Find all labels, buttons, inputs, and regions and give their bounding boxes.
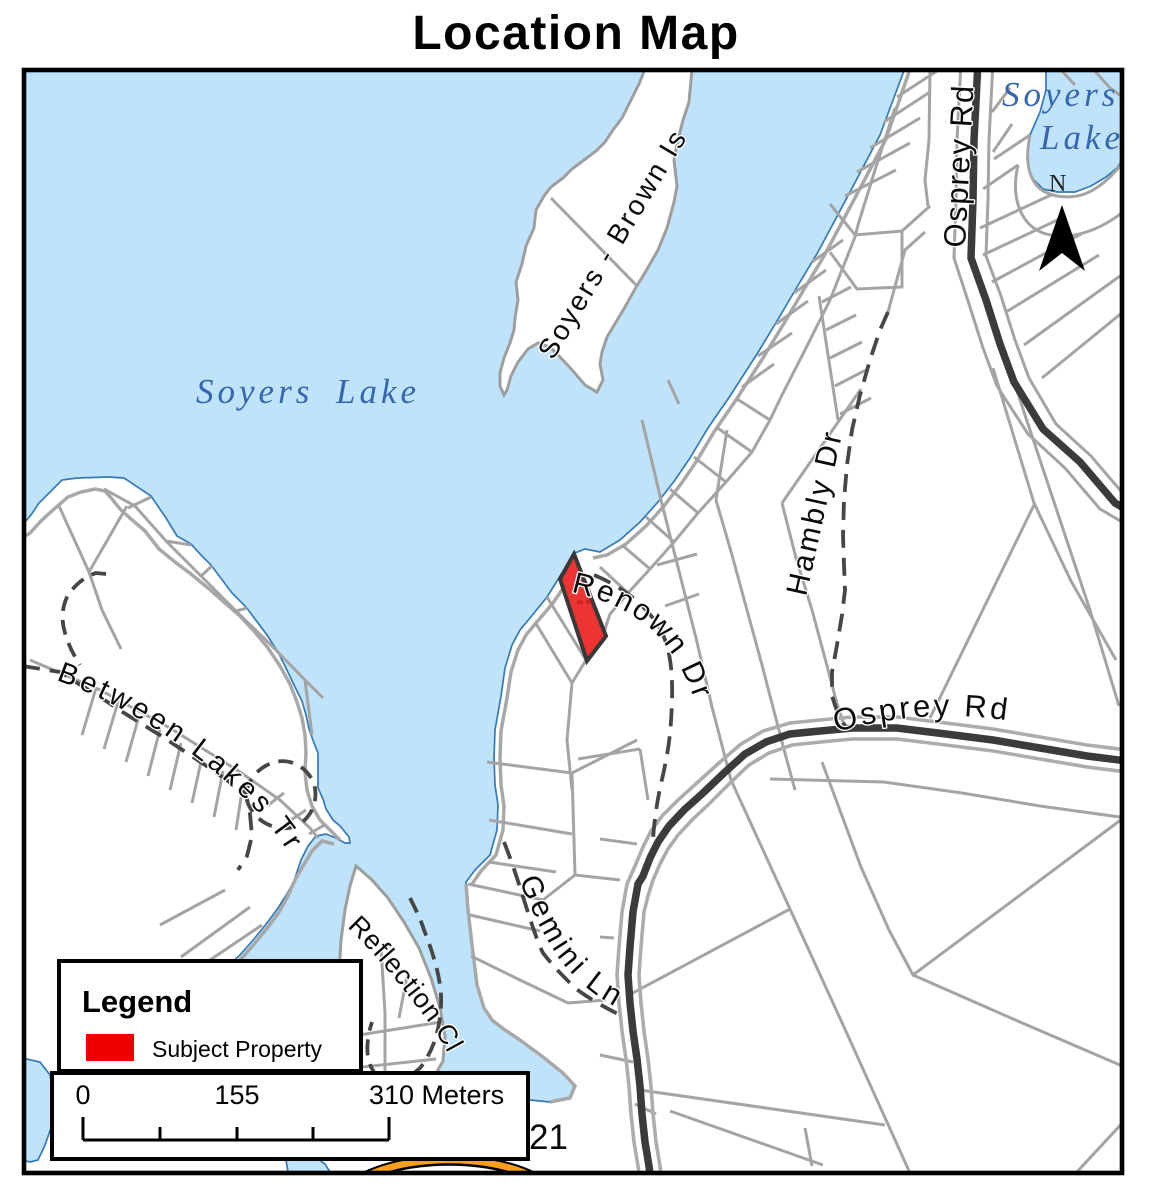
svg-text:Lake: Lake bbox=[1039, 118, 1124, 157]
svg-text:0: 0 bbox=[75, 1080, 90, 1110]
svg-text:Legend: Legend bbox=[82, 984, 192, 1019]
svg-text:Soyers: Soyers bbox=[1002, 75, 1119, 114]
svg-text:21: 21 bbox=[529, 1118, 568, 1157]
svg-text:Location Map: Location Map bbox=[412, 7, 739, 60]
svg-text:Subject Property: Subject Property bbox=[152, 1036, 323, 1062]
svg-text:310 Meters: 310 Meters bbox=[369, 1080, 504, 1110]
svg-text:N: N bbox=[1049, 171, 1066, 197]
svg-text:Soyers Lake: Soyers Lake bbox=[196, 372, 420, 411]
svg-text:155: 155 bbox=[214, 1080, 259, 1110]
